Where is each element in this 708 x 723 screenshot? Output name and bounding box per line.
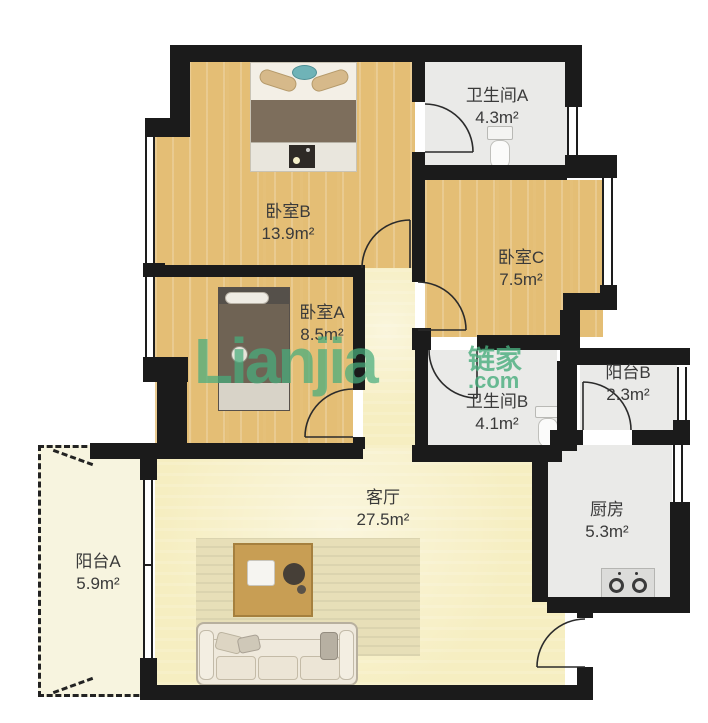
room-name: 客厅 [357,487,410,509]
room-name: 卧室C [498,247,544,269]
label-living-room: 客厅 27.5m² [357,487,410,531]
label-kitchen: 厨房 5.3m² [585,499,628,543]
room-name: 阳台B [605,362,650,384]
room-area: 27.5m² [357,509,410,531]
room-area: 7.5m² [498,269,544,291]
room-area: 5.3m² [585,521,628,543]
room-area: 2.3m² [605,384,650,406]
label-balcony-a: 阳台A 5.9m² [75,551,120,595]
label-bedroom-c: 卧室C 7.5m² [498,247,544,291]
label-bedroom-b: 卧室B 13.9m² [262,201,315,245]
lianjia-watermark-logo: Lianjia [194,324,376,398]
room-name: 卫生间A [466,85,528,107]
door-bedroom-c [418,282,466,330]
floor-plan: 卧室B 13.9m² 卫生间A 4.3m² 卧室C 7.5m² 卧室A 8.5m… [0,0,708,723]
label-bathroom-b: 卫生间B 4.1m² [466,391,528,435]
label-bathroom-a: 卫生间A 4.3m² [466,85,528,129]
room-name: 阳台A [75,551,120,573]
label-balcony-b: 阳台B 2.3m² [605,362,650,406]
room-area: 5.9m² [75,573,120,595]
room-name: 厨房 [585,499,628,521]
door-entry [537,619,585,667]
room-name: 卧室B [262,201,315,223]
lianjia-watermark-suffix: .com [468,368,519,394]
room-area: 4.1m² [466,413,528,435]
room-name: 卧室A [299,302,344,324]
room-area: 13.9m² [262,223,315,245]
door-bedroom-b [362,220,410,268]
room-name: 卫生间B [466,391,528,413]
room-area: 4.3m² [466,107,528,129]
